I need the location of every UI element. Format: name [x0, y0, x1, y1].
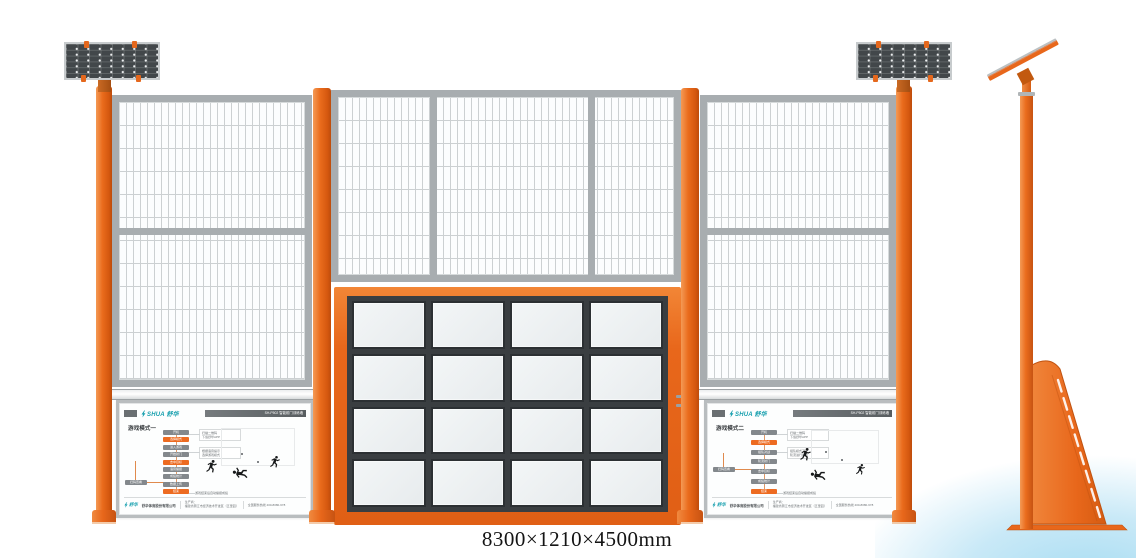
- screen-cell: [510, 407, 584, 455]
- goal-outline: [811, 430, 879, 464]
- screen-cell: [589, 459, 663, 507]
- solar-clip: [873, 75, 878, 82]
- bottom-rail-left: [104, 389, 324, 400]
- model-label-bar: SH-P502 智能射门训练墙: [205, 410, 306, 417]
- post-mid-left: [313, 88, 331, 522]
- solar-clip: [132, 41, 137, 48]
- screen-cell: [431, 301, 505, 349]
- screen-cell: [589, 407, 663, 455]
- flow-step: 击中目标: [751, 469, 777, 474]
- ball-dot: [841, 459, 843, 461]
- flow-step: 选择模式: [751, 440, 777, 445]
- footer-logo: 舒华: [124, 502, 138, 508]
- header-block: [712, 410, 725, 417]
- flow-step: 轮流射门: [751, 459, 777, 464]
- info-board-left: SHUA 舒华 SH-P502 智能射门训练墙 游戏模式一 开机 选择模式 进入…: [116, 400, 314, 518]
- player-silhouette-icon: [855, 463, 866, 476]
- player-silhouette-icon: [269, 455, 281, 469]
- flow-step: 结束: [751, 489, 777, 494]
- flow-step: 开始射门: [163, 452, 189, 457]
- solar-panel: [856, 42, 952, 80]
- footer-hotline: 全国服务热线 400-8080-678: [836, 503, 874, 507]
- footer-company: 舒华体育股份有限公司: [142, 503, 176, 508]
- solar-assembly-right: [856, 42, 952, 80]
- mesh-vrail: [588, 97, 595, 275]
- footer-divider: [243, 501, 244, 509]
- board-footer: 舒华 舒华体育股份有限公司 生产商： 福建省晋江市经济技术开发区（五里园） 全国…: [712, 497, 892, 512]
- screen-cell: [431, 354, 505, 402]
- flow-step: 语音播报: [163, 467, 189, 472]
- flow-bottom-note: 游戏结束后自动播报成绩: [195, 491, 228, 495]
- brand-text: SHUA 舒华: [147, 409, 179, 418]
- solar-clip: [84, 41, 89, 48]
- board-title: 游戏模式二: [716, 424, 744, 432]
- screen-grid-inner: [347, 296, 668, 512]
- brand-logo: SHUA 舒华: [141, 409, 179, 418]
- model-label-bar: SH-P502 智能射门训练墙: [793, 410, 892, 417]
- mesh-panel-left: [112, 95, 312, 387]
- footer-maker: 生产商： 福建省晋江市经济技术开发区（五里园）: [185, 501, 239, 509]
- lightning-icon: [729, 410, 734, 418]
- ball-dot: [241, 453, 243, 455]
- player-silhouette-icon: [799, 447, 812, 462]
- flow-steps: 开机 选择模式 组队对战 轮流射门 击中目标 成绩统计 结束: [751, 430, 777, 494]
- flow-step: 开机: [163, 430, 189, 435]
- side-view-pole-joint: [1018, 92, 1035, 96]
- lightning-icon: [712, 502, 716, 508]
- player-silhouette-icon: [205, 459, 218, 474]
- screen-cell: [510, 354, 584, 402]
- post-mid-right: [681, 88, 699, 522]
- footer-company: 舒华体育股份有限公司: [730, 503, 764, 508]
- solar-clip: [136, 75, 141, 82]
- footer-divider: [180, 501, 181, 509]
- screen-cell: [510, 301, 584, 349]
- flow-bottom-note: 游戏结束后自动播报成绩: [783, 491, 816, 495]
- mesh-midrail: [707, 228, 889, 235]
- screen-cell: [352, 301, 426, 349]
- solar-assembly-left: [64, 42, 160, 80]
- bottom-rail-right: [692, 389, 904, 400]
- flow-step: 开机: [751, 430, 777, 435]
- info-board-right: SHUA 舒华 SH-P502 智能射门训练墙 游戏模式二 开机 选择模式 组队…: [704, 400, 900, 518]
- mesh-vrail: [430, 97, 437, 275]
- flow-step: 数据上传: [163, 482, 189, 487]
- flow-step: 成绩统计: [163, 474, 189, 479]
- screen-cell: [510, 459, 584, 507]
- screen-cell: [431, 459, 505, 507]
- header-block: [124, 410, 137, 417]
- flow-step: 结束: [163, 489, 189, 494]
- product-render-canvas: SHUA 舒华 SH-P502 智能射门训练墙 游戏模式一 开机 选择模式 进入…: [0, 0, 1136, 558]
- post-outer-left: [96, 86, 112, 522]
- footer-maker: 生产商： 福建省晋江市经济技术开发区（五里园）: [773, 501, 827, 509]
- flow-step: 选择模式: [163, 437, 189, 442]
- flow-step: 进入游戏: [163, 445, 189, 450]
- solar-panel: [64, 42, 160, 80]
- solar-clip: [928, 75, 933, 82]
- board-footer: 舒华 舒华体育股份有限公司 生产商： 福建省晋江市经济技术开发区（五里园） 全国…: [124, 497, 306, 512]
- ball-dot: [257, 461, 259, 463]
- player-silhouette-icon: [231, 464, 249, 482]
- screen-cell: [589, 354, 663, 402]
- score-screen-grid: [334, 287, 681, 525]
- flow-step: 击中目标: [163, 460, 189, 465]
- post-outer-right: [896, 86, 912, 522]
- ball-dot: [825, 451, 827, 453]
- screen-cell: [352, 407, 426, 455]
- brand-logo: SHUA 舒华: [729, 409, 767, 418]
- lightning-icon: [141, 410, 146, 418]
- board-title: 游戏模式一: [128, 424, 156, 432]
- flow-side-step: 扫码查看: [125, 480, 147, 485]
- lightning-icon: [124, 502, 128, 508]
- screen-cell: [589, 301, 663, 349]
- footer-divider: [768, 501, 769, 509]
- dimension-label: 8300×1210×4500mm: [437, 527, 717, 552]
- mesh-midrail: [119, 228, 305, 235]
- solar-clip: [81, 75, 86, 82]
- flow-side-step: 扫码查看: [713, 467, 735, 472]
- screen-cell: [352, 354, 426, 402]
- flow-step: 成绩统计: [751, 479, 777, 484]
- mesh-panel-right: [700, 95, 896, 387]
- mesh-panel-center-top: [331, 90, 681, 282]
- side-view-panel-bracket: [1017, 68, 1035, 86]
- side-view-pole: [1020, 95, 1033, 529]
- flow-steps: 开机 选择模式 进入游戏 开始射门 击中目标 语音播报 成绩统计 数据上传 结束: [163, 430, 189, 494]
- solar-clip: [924, 41, 929, 48]
- screen-cell: [352, 459, 426, 507]
- flow-step: 组队对战: [751, 450, 777, 455]
- footer-divider: [831, 501, 832, 509]
- screen-cell: [431, 407, 505, 455]
- solar-clip: [876, 41, 881, 48]
- footer-hotline: 全国服务热线 400-8080-678: [248, 503, 286, 507]
- footer-logo: 舒华: [712, 502, 726, 508]
- brand-text: SHUA 舒华: [735, 409, 767, 418]
- player-silhouette-icon: [809, 466, 827, 484]
